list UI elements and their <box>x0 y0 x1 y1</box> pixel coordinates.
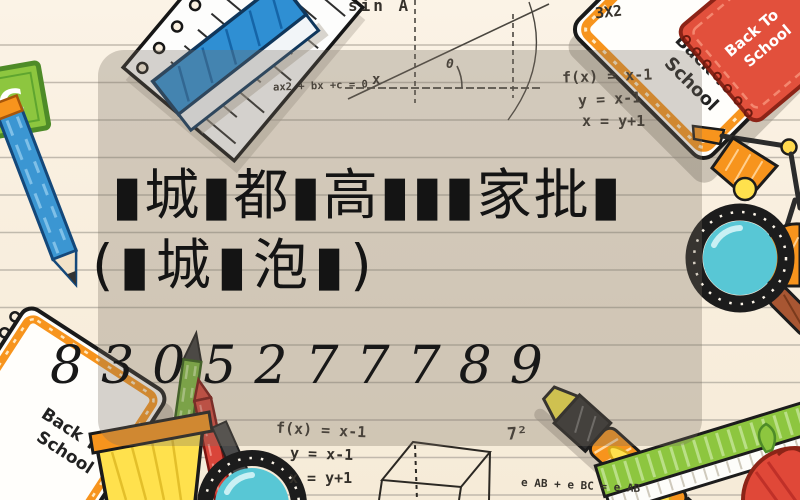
fx-bottom-line2: y = x-1 <box>290 444 354 464</box>
cubic-formula: 3X2 <box>594 2 623 23</box>
sin-formula: sin A <box>348 0 411 15</box>
poster-canvas: C <box>0 0 800 500</box>
title-line-2: (▮城▮泡▮) <box>92 238 378 293</box>
phone-number: 8305277789 <box>50 336 561 396</box>
title-line-1: ▮城▮都▮高▮▮▮家批▮ <box>112 168 623 223</box>
cube-doodle <box>379 442 490 500</box>
fx-bottom-line3: x = y+1 <box>289 469 352 487</box>
magnifier-doodle <box>694 212 800 337</box>
magnifier-small-doodle <box>205 458 299 500</box>
